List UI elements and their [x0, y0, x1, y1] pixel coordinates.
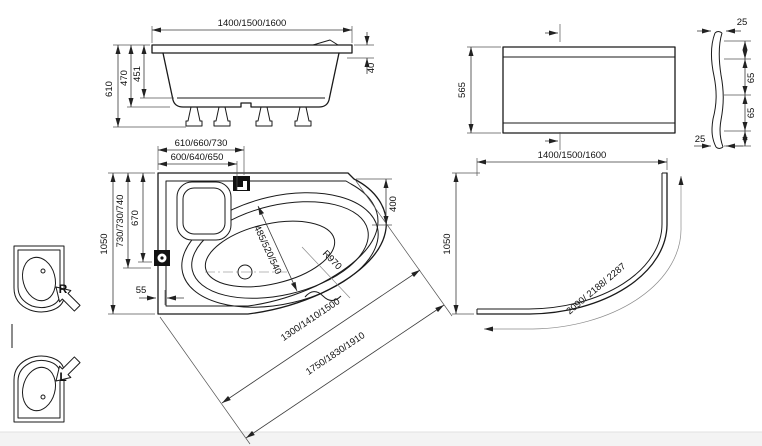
right-version-label: R [59, 282, 68, 296]
plan-fitting-inner-label: 670 [130, 210, 141, 226]
tub-foot-4 [295, 107, 311, 126]
plan-fitting-outer-label: 730/730/740 [115, 195, 126, 248]
panel-thickness-bottom-label: 25 [695, 134, 706, 145]
panel-thickness-top-label: 25 [737, 17, 748, 28]
panel-flange-lower-label: 65 [746, 108, 757, 119]
left-version-icon: L [14, 354, 83, 422]
side-view: 1400/1500/1600 610 470 451 40 [104, 18, 377, 127]
tub-rim-side [152, 45, 352, 53]
faucet-fixture-icon [233, 176, 250, 191]
plan-wall-to-rim-label: 55 [136, 285, 147, 296]
panel-height-label: 565 [457, 82, 468, 98]
tub-foot-3 [256, 107, 272, 126]
plan-faucet-outer-label: 610/660/730 [175, 138, 228, 149]
drawing-canvas: 1400/1500/1600 610 470 451 40 565 [0, 0, 762, 446]
tub-foot-1 [186, 107, 202, 126]
headrest-outer [177, 182, 231, 240]
corner-panel-outer-edge [477, 173, 667, 314]
footer-strip [0, 432, 762, 446]
tub-body-side [163, 53, 339, 107]
cpanel-arc-length-label: 2090/ 2188/ 2287 [565, 261, 629, 317]
tub-foot-2 [214, 107, 230, 126]
side-height-total-label: 610 [104, 81, 115, 97]
front-panel-view: 565 25 65 65 25 [457, 17, 757, 150]
plan-depth-label: 1050 [99, 233, 110, 254]
plan-corner-drop-label: 400 [388, 196, 399, 212]
side-depth-inner-label: 451 [132, 66, 143, 82]
panel-face [503, 47, 675, 133]
headrest-wedge [313, 40, 338, 45]
side-rim-drop-label: 40 [366, 63, 377, 74]
corner-panel-view: 2090/ 2188/ 2287 1400/1500/1600 1050 [442, 150, 681, 329]
panel-flange-upper-label: 65 [746, 73, 757, 84]
plan-faucet-inner-label: 600/640/650 [171, 152, 224, 163]
plan-view: 610/660/730 600/640/650 1050 730/730/740… [99, 138, 452, 444]
side-width-label: 1400/1500/1600 [218, 18, 287, 29]
orientation-icons: R L [12, 246, 83, 422]
right-version-icon: R [14, 246, 83, 314]
bathtub-technical-drawing: 1400/1500/1600 610 470 451 40 565 [0, 0, 762, 446]
side-fitting-icon [154, 250, 170, 266]
panel-profile-section [712, 32, 724, 149]
plan-front-outer-label: 1750/1830/1910 [304, 330, 367, 378]
corner-panel-inner-edge [477, 173, 662, 309]
side-height-shell-label: 470 [119, 70, 130, 86]
corner-panel-caps [477, 173, 667, 314]
left-version-label: L [59, 370, 66, 384]
cpanel-depth-label: 1050 [442, 233, 453, 254]
cpanel-width-label: 1400/1500/1600 [538, 150, 607, 161]
